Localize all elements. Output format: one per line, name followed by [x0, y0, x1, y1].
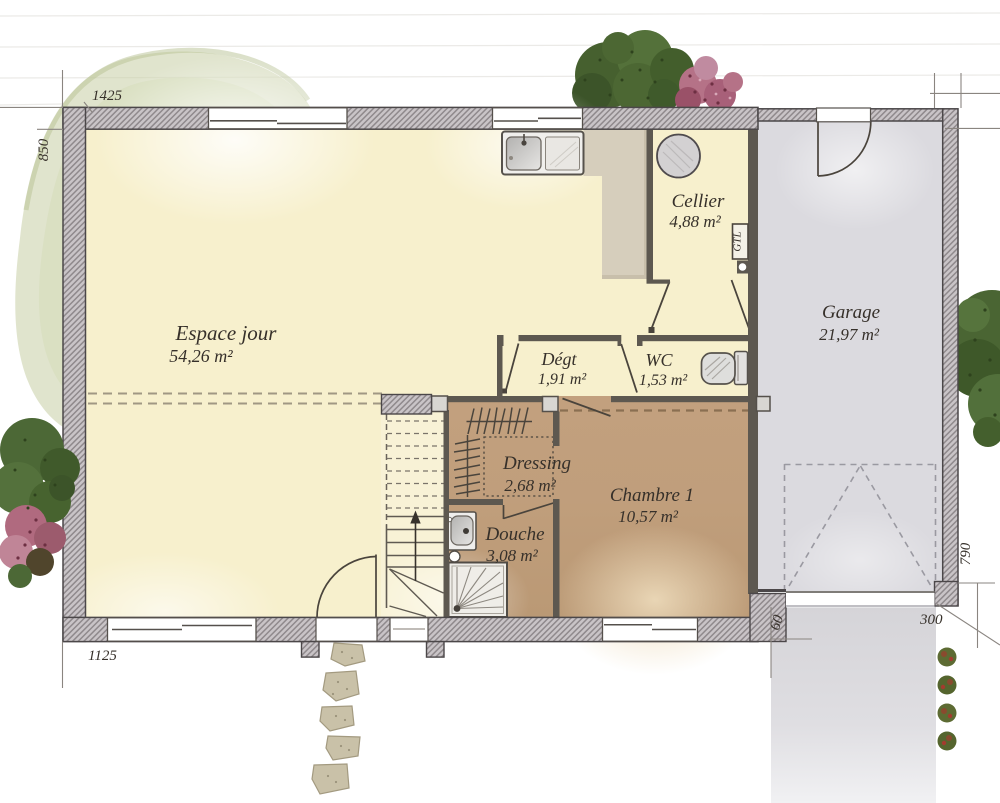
svg-text:300: 300 — [919, 612, 943, 628]
svg-text:Cellier: Cellier — [672, 191, 725, 212]
svg-text:21,97 m²: 21,97 m² — [819, 325, 880, 344]
svg-text:1,53 m²: 1,53 m² — [639, 372, 689, 389]
svg-text:790: 790 — [958, 542, 974, 565]
svg-text:1425: 1425 — [92, 88, 123, 104]
svg-text:Dressing: Dressing — [502, 453, 571, 474]
svg-text:2,68 m²: 2,68 m² — [504, 476, 556, 495]
svg-text:3,08 m²: 3,08 m² — [485, 546, 538, 565]
svg-text:Chambre 1: Chambre 1 — [610, 485, 694, 506]
svg-text:Espace jour: Espace jour — [175, 321, 278, 345]
svg-text:10,57 m²: 10,57 m² — [618, 507, 679, 526]
svg-text:850: 850 — [36, 138, 52, 161]
svg-text:Dégt: Dégt — [541, 349, 578, 369]
svg-text:1,91 m²: 1,91 m² — [538, 371, 588, 388]
svg-text:Garage: Garage — [822, 302, 880, 323]
svg-text:Douche: Douche — [484, 524, 544, 545]
svg-text:WC: WC — [646, 350, 674, 370]
svg-text:54,26 m²: 54,26 m² — [169, 346, 233, 366]
svg-text:1125: 1125 — [88, 648, 117, 664]
svg-text:GTL: GTL — [732, 231, 744, 251]
svg-text:4,88 m²: 4,88 m² — [669, 212, 721, 231]
